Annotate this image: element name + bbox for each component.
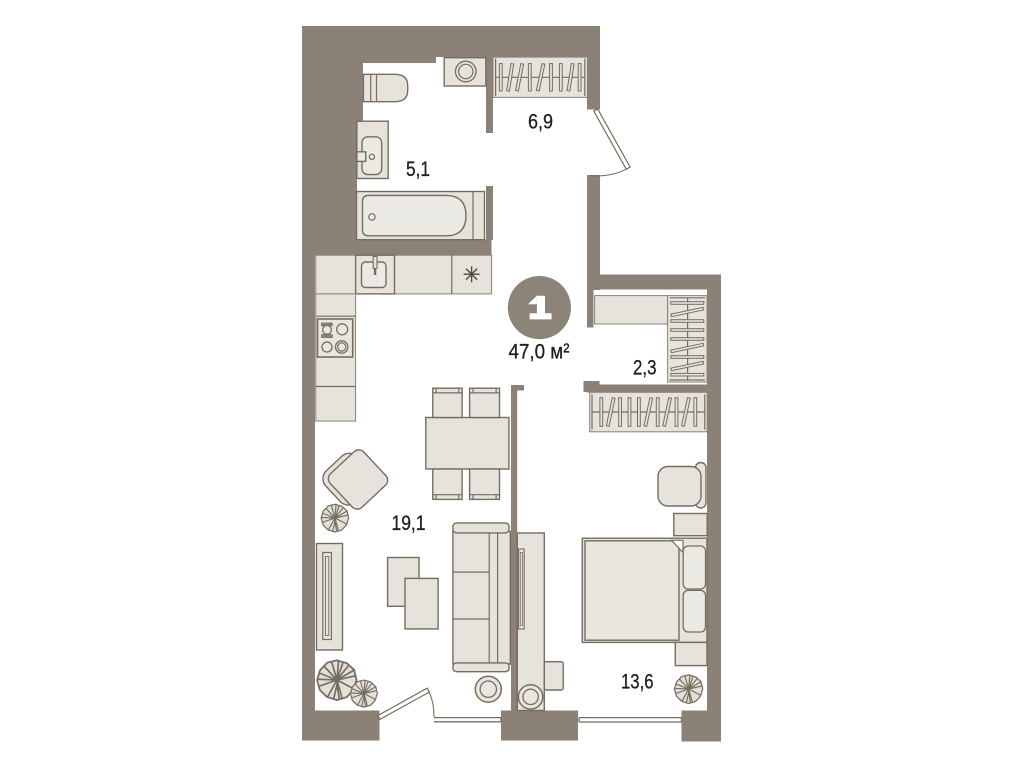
svg-text:19,1: 19,1 xyxy=(392,512,426,535)
svg-text:5,1: 5,1 xyxy=(406,158,430,181)
svg-text:13,6: 13,6 xyxy=(621,671,654,694)
svg-text:2,3: 2,3 xyxy=(633,357,657,380)
svg-text:6,9: 6,9 xyxy=(528,111,553,134)
svg-text:47,0 м²: 47,0 м² xyxy=(509,340,570,364)
